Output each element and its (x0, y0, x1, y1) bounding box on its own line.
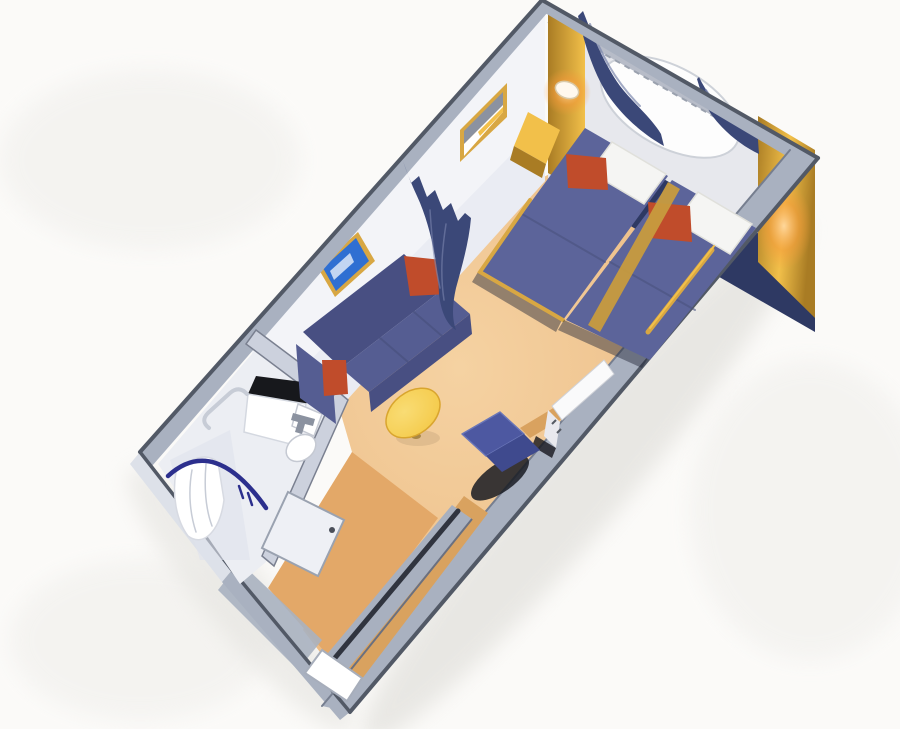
sofa-cushion-lower (322, 360, 348, 396)
background-mottle (0, 70, 300, 250)
floorplan-svg (0, 0, 900, 729)
bed-1-accent-cushion (566, 154, 608, 190)
door-handle-icon (329, 527, 335, 533)
stateroom-rendering (0, 0, 900, 729)
